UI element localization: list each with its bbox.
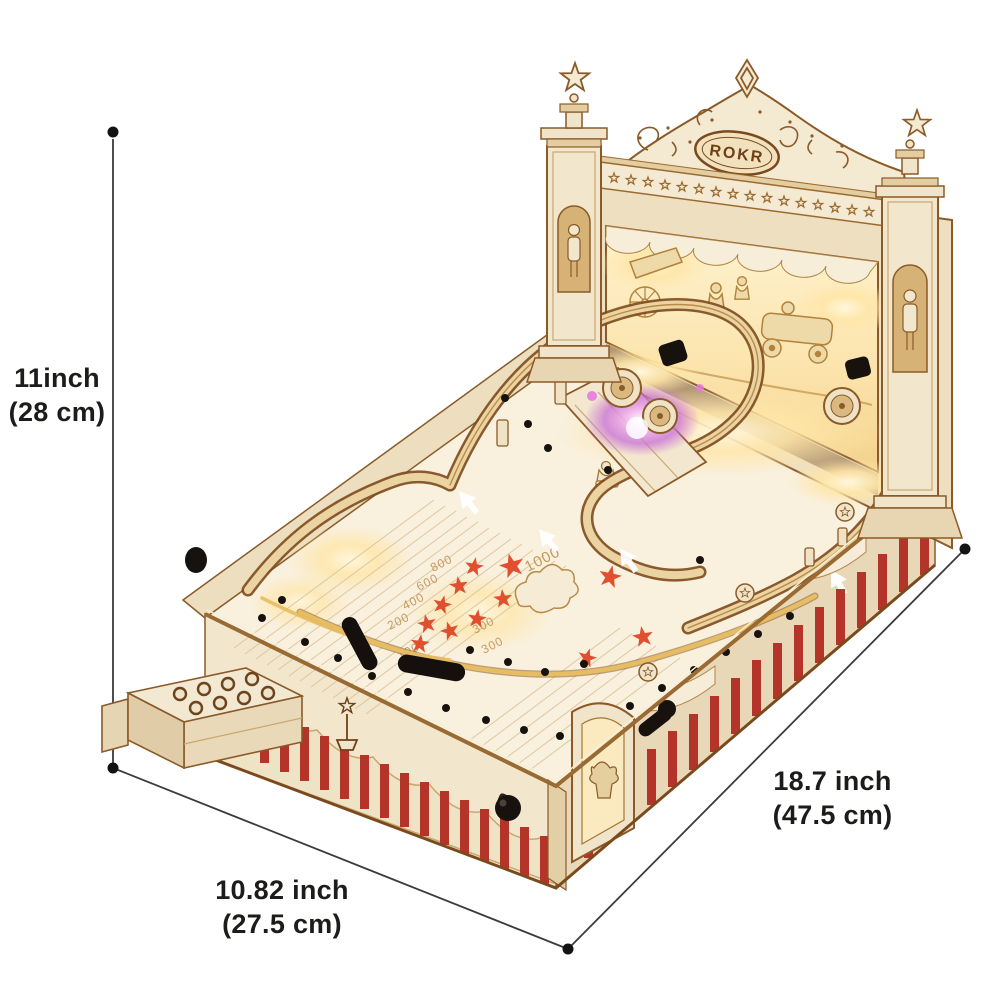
length-dimension-label: 18.7 inch (47.5 cm) <box>705 764 960 832</box>
right-star-finial <box>896 110 930 174</box>
width-metric-value: (27.5 cm) <box>157 907 407 941</box>
width-imperial-value: 10.82 inch <box>157 873 407 907</box>
height-bottom-dot <box>108 763 119 774</box>
length-metric-value: (47.5 cm) <box>705 798 960 832</box>
height-metric-value: (28 cm) <box>2 395 112 429</box>
pinball-machine-illustration: ROKR <box>0 0 1000 1000</box>
length-end-dot <box>960 544 971 555</box>
corner-post <box>548 780 566 890</box>
height-imperial-value: 11inch <box>2 361 112 395</box>
width-dimension-label: 10.82 inch (27.5 cm) <box>157 873 407 941</box>
height-top-dot <box>108 127 119 138</box>
bottom-vertex-dot <box>563 944 574 955</box>
height-dimension-label: 11inch (28 cm) <box>2 361 112 429</box>
left-star-finial <box>560 63 589 128</box>
length-imperial-value: 18.7 inch <box>705 764 960 798</box>
corner-arch-ornament <box>572 703 634 862</box>
product-dimension-diagram: ROKR <box>0 0 1000 1000</box>
left-side-knob <box>185 547 207 573</box>
